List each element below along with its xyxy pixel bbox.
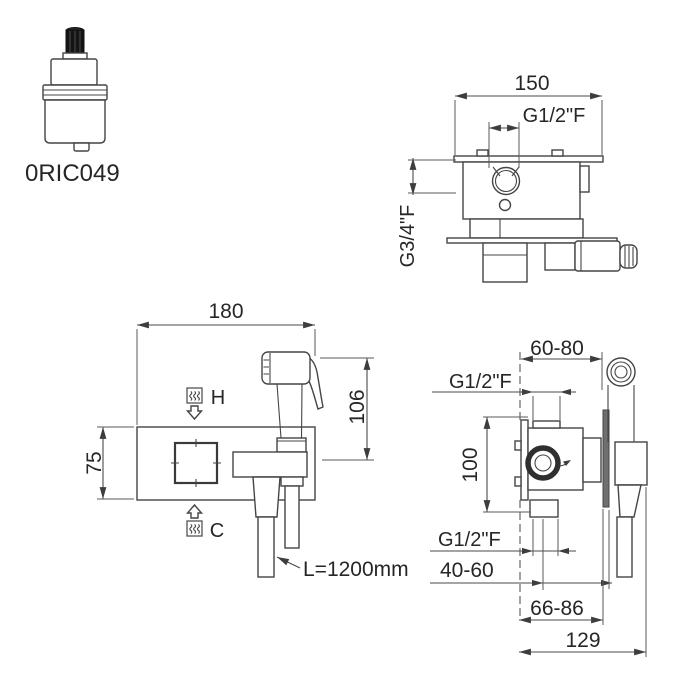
shower-head bbox=[262, 352, 310, 384]
dim-shower-height-106: 106 bbox=[320, 358, 374, 460]
dim-plate-height-75: 75 bbox=[83, 427, 134, 499]
square-handle bbox=[175, 443, 217, 483]
inwall-body bbox=[463, 162, 580, 219]
hose-long bbox=[258, 517, 274, 577]
shower-holder-bracket bbox=[233, 452, 307, 477]
body-side-stub bbox=[580, 166, 589, 192]
cartridge-view: 0RIC049 bbox=[25, 28, 120, 188]
cartridge-body bbox=[45, 100, 105, 143]
hot-flow-arrow-icon bbox=[188, 406, 202, 419]
dim-66-86-label: 66-86 bbox=[530, 597, 584, 620]
body-step bbox=[470, 219, 583, 238]
fixing-tab-left bbox=[477, 150, 488, 156]
cold-water-indicator: C bbox=[187, 505, 224, 542]
hot-water-indicator: H bbox=[187, 387, 225, 419]
mounting-plate-edge bbox=[454, 156, 603, 162]
spout-top bbox=[483, 243, 527, 282]
cartridge-port bbox=[528, 448, 558, 478]
cartridge-upper-body bbox=[51, 59, 97, 85]
cold-label: C bbox=[210, 520, 224, 542]
dim-bottom-outlet-thread: G1/2"F bbox=[430, 519, 576, 556]
body-tab-top bbox=[515, 441, 521, 450]
front-view: H C 180 75 bbox=[83, 300, 409, 581]
dim-150-label: 150 bbox=[514, 72, 549, 95]
cartridge-bottom-nub bbox=[74, 143, 89, 151]
top-view: 150 G1/2"F G3/4"F bbox=[397, 72, 637, 282]
g12f-top-view-label: G1/2"F bbox=[523, 105, 586, 127]
dim-inlet-spacing-100: 100 bbox=[459, 417, 531, 512]
fixing-tab-right bbox=[552, 150, 563, 156]
body-front-housing bbox=[583, 438, 601, 482]
cartridge-flange bbox=[43, 85, 107, 100]
dim-hose-length: L=1200mm bbox=[277, 557, 409, 581]
dim-180-label: 180 bbox=[208, 300, 243, 323]
cold-steam-icon bbox=[187, 521, 202, 536]
handle-base-top bbox=[545, 243, 575, 270]
dim-60-80-label: 60-80 bbox=[530, 337, 584, 360]
shower-collar bbox=[277, 438, 306, 452]
shower-body-side bbox=[608, 385, 634, 442]
hot-label: H bbox=[211, 387, 225, 409]
hose-relief-side bbox=[618, 485, 641, 517]
hose-side bbox=[617, 517, 632, 577]
hose-length-label: L=1200mm bbox=[303, 558, 409, 581]
hot-steam-icon bbox=[187, 388, 202, 403]
dim-plate-recess-66-86: 66-86 bbox=[519, 509, 603, 625]
cold-flow-arrow-icon bbox=[188, 505, 202, 518]
dim-129-label: 129 bbox=[565, 629, 600, 652]
dim-top-inlet-thread: G1/2"F bbox=[432, 371, 576, 420]
cartridge-code-label: 0RIC049 bbox=[25, 160, 120, 187]
hose-short bbox=[285, 486, 299, 548]
dim-40-60-label: 40-60 bbox=[440, 559, 494, 582]
g34f-label: G3/4"F bbox=[397, 205, 419, 268]
drawing-canvas: 0RIC049 150 G1/2"F bbox=[0, 0, 700, 700]
top-inlet-stub bbox=[533, 421, 560, 428]
dim-depth-range-60-80: 60-80 bbox=[521, 337, 602, 390]
g12f-top-inlet-label: G1/2"F bbox=[449, 371, 512, 393]
hose-leader-line bbox=[277, 557, 300, 568]
technical-drawing-page: 0RIC049 150 G1/2"F bbox=[0, 0, 700, 700]
side-view: 60-80 G1/2"F 100 G1/2"F 40-60 bbox=[430, 337, 647, 657]
hose-strain-relief bbox=[253, 477, 280, 517]
dim-side-outlet-thread: G3/4"F bbox=[397, 158, 456, 267]
handle-lever-top bbox=[575, 241, 620, 271]
fixing-hole bbox=[500, 200, 511, 211]
handle-block-side bbox=[615, 442, 647, 485]
g12f-bottom-outlet-label: G1/2"F bbox=[438, 529, 501, 551]
cartridge-neck bbox=[63, 53, 87, 59]
dim-106-label: 106 bbox=[346, 389, 369, 424]
body-tab-bottom bbox=[515, 477, 521, 486]
dim-100-label: 100 bbox=[459, 447, 482, 482]
hose-nut bbox=[281, 477, 303, 486]
bottom-outlet-stub bbox=[530, 500, 558, 517]
